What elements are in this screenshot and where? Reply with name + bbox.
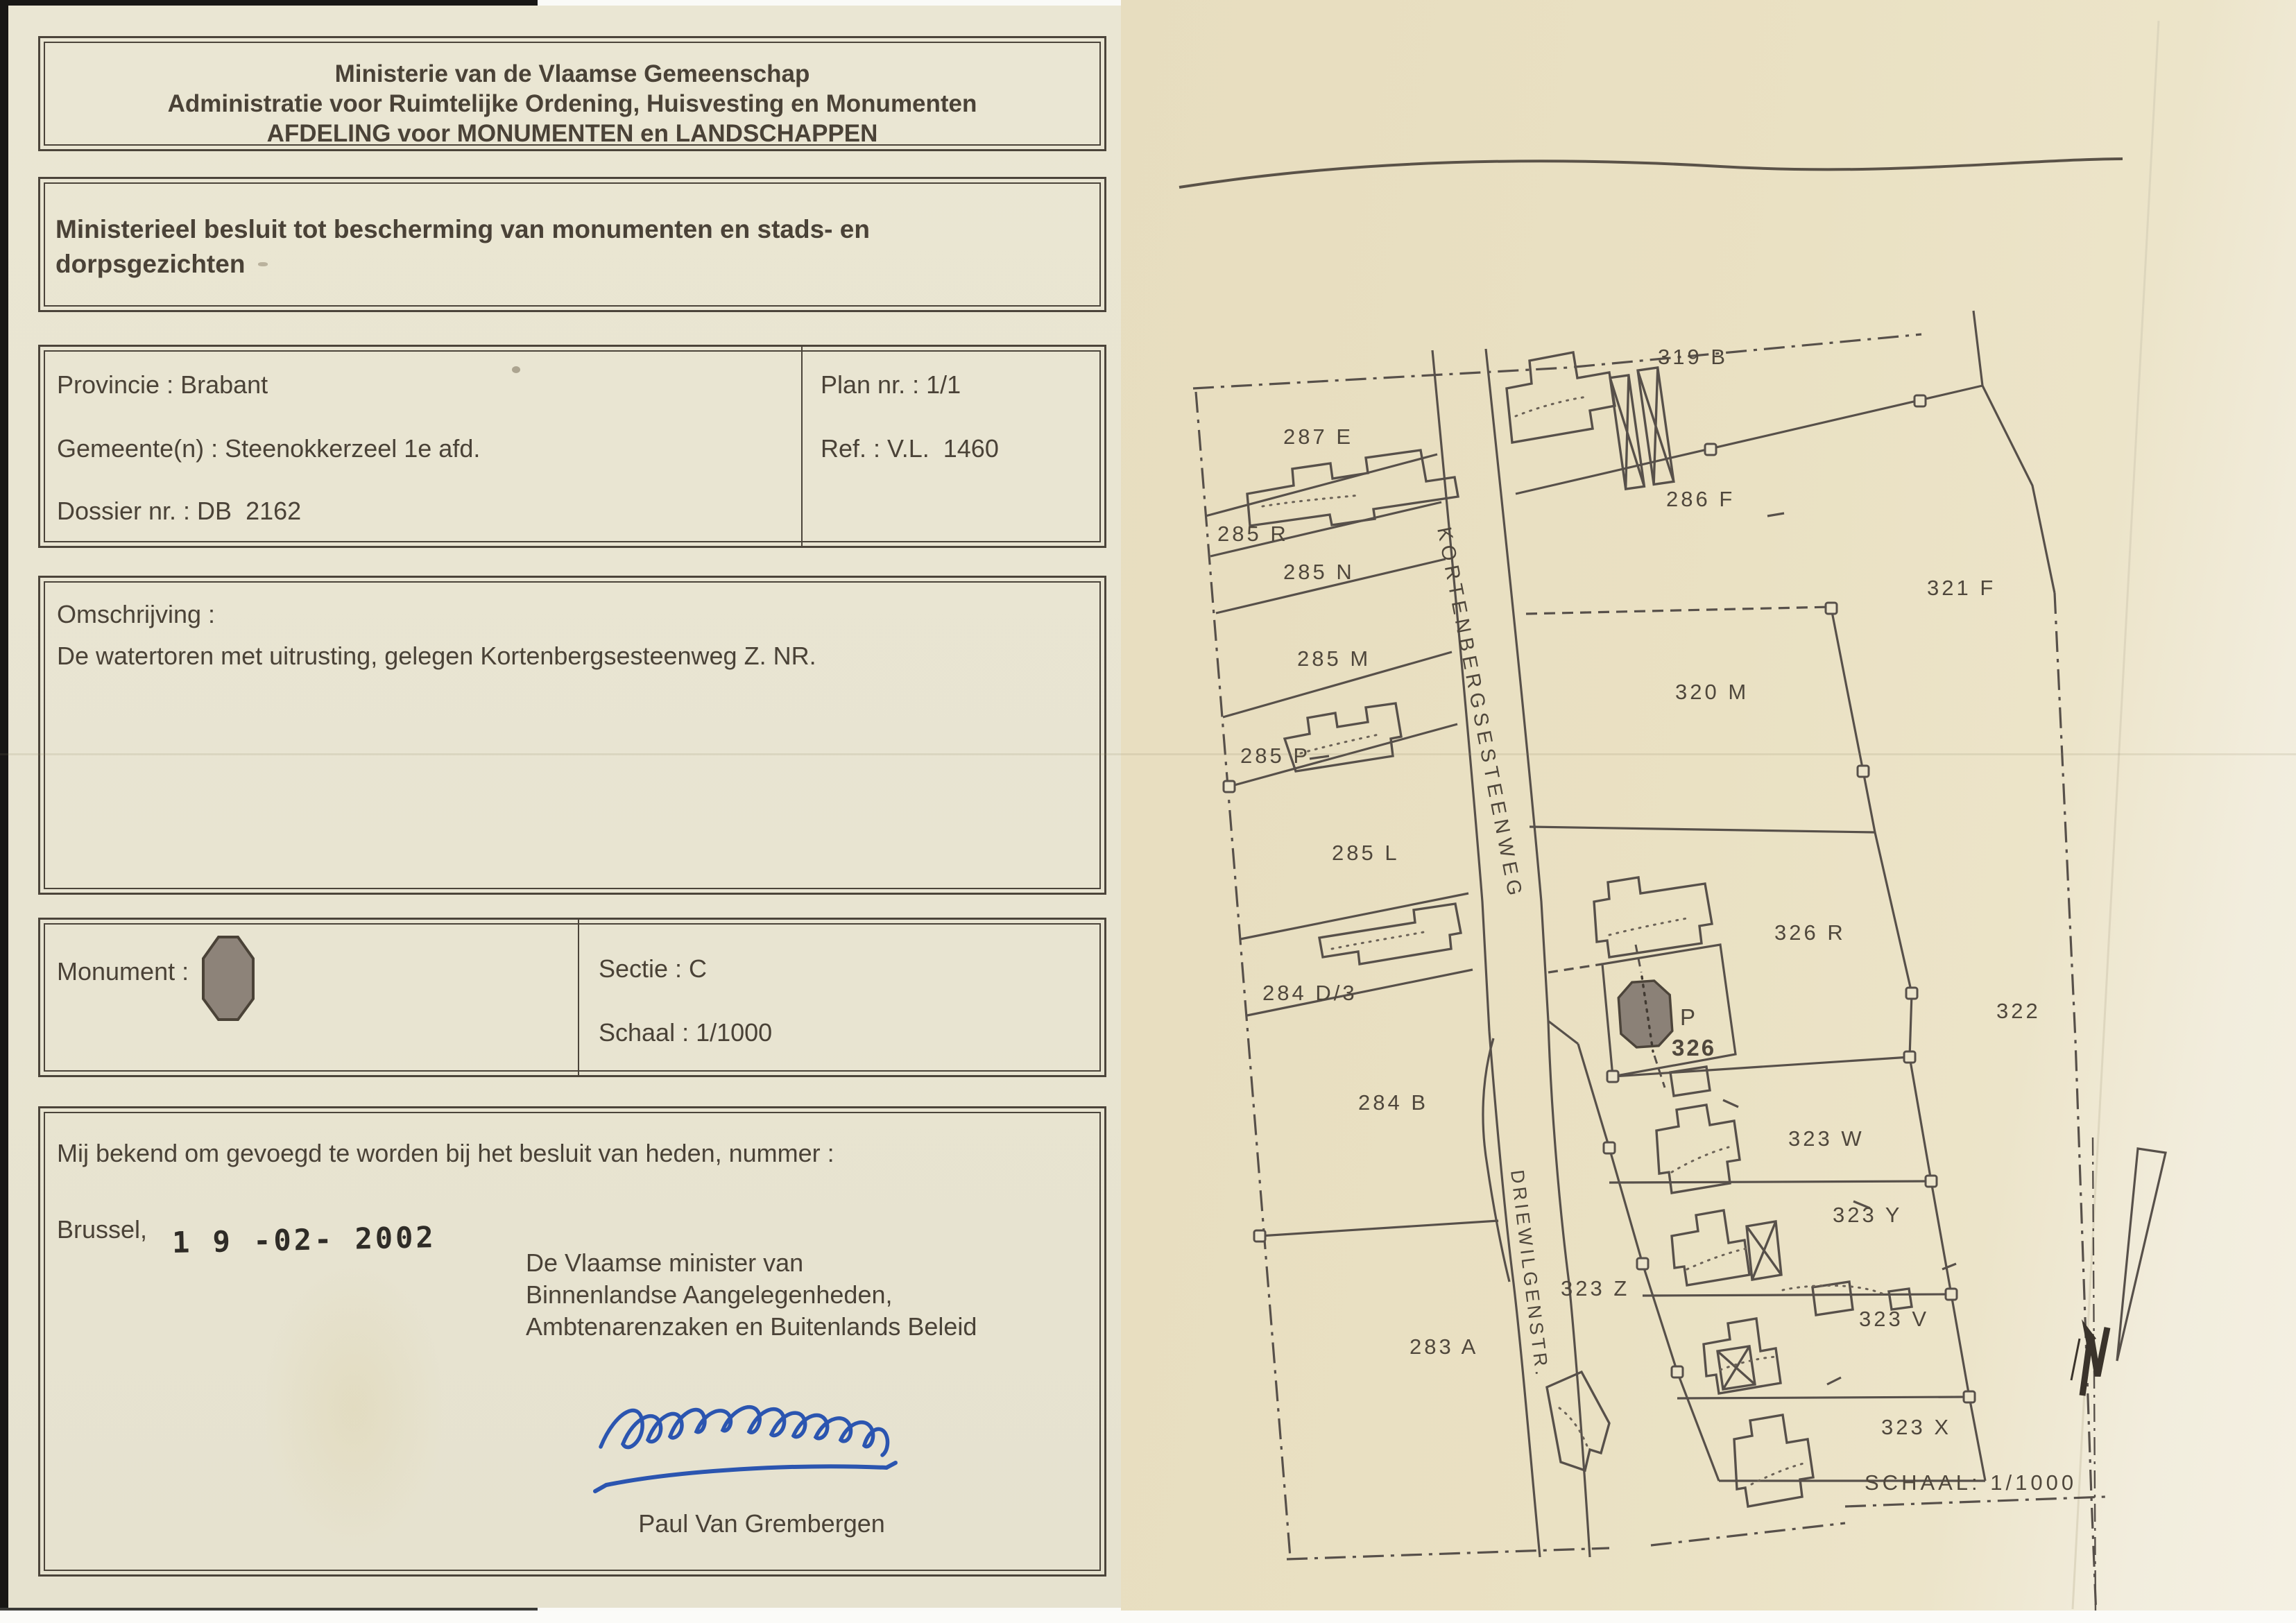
- parcel-label: 323 W: [1788, 1126, 1865, 1151]
- monument-label: Monument :: [57, 956, 189, 987]
- parcel-label: 319 B: [1658, 345, 1728, 369]
- signature: [588, 1372, 921, 1518]
- schaal-field: Schaal : 1/1000: [599, 1017, 772, 1048]
- parcel-label: 285 P: [1240, 744, 1310, 768]
- street-label-kortenbergsesteenweg: KORTENBERGSESTEENWEG: [1432, 525, 1527, 902]
- scanned-document: Ministerie van de Vlaamse Gemeenschap Ad…: [0, 0, 2296, 1623]
- parcel-label: 321 F: [1927, 576, 1996, 600]
- parcel-label: 323 V: [1859, 1307, 1929, 1331]
- parcel-label: 322: [1996, 999, 2041, 1023]
- parcel-label: 286 F: [1666, 487, 1735, 511]
- info-divider: [801, 347, 803, 546]
- monument-marker-number: 326: [1672, 1035, 1716, 1060]
- closing-box: Mij bekend om gevoegd te worden bij het …: [38, 1106, 1106, 1577]
- parcel-label: 323 X: [1881, 1415, 1951, 1439]
- dossier-field: Dossier nr. : DB 2162: [57, 495, 301, 526]
- parcel-label: 285 L: [1332, 841, 1400, 865]
- map-scale-label: SCHAAL: 1/1000: [1865, 1470, 2077, 1495]
- scan-edge-left: [0, 0, 8, 1608]
- boundary-markers: [1224, 395, 1975, 1402]
- north-arrow-icon: [2071, 1319, 2107, 1396]
- dossier-info-box: Provincie : Brabant Gemeente(n) : Steeno…: [38, 345, 1106, 548]
- known-line: Mij bekend om gevoegd te worden bij het …: [57, 1137, 1070, 1169]
- horizontal-crease: [0, 753, 2296, 755]
- monument-legend-box: Monument : Sectie : C Schaal : 1/1000: [38, 918, 1106, 1077]
- parcel-label: 285 R: [1217, 522, 1289, 546]
- scan-bottom-strip: [0, 1611, 2296, 1623]
- monument-marker-p: P: [1680, 1004, 1697, 1030]
- omschrijving-label: Omschrijving :: [57, 599, 215, 630]
- place-line: Brussel,: [57, 1214, 147, 1245]
- scan-edge-top: [0, 0, 538, 6]
- omschrijving-text: De watertoren met uitrusting, gelegen Ko…: [57, 640, 1056, 671]
- north-needle-triangle: [2117, 1149, 2166, 1361]
- parcel-label: 284 D/3: [1262, 981, 1357, 1005]
- form-page: Ministerie van de Vlaamse Gemeenschap Ad…: [8, 6, 1121, 1608]
- parcel-label: 323 Y: [1833, 1203, 1902, 1227]
- decree-title: Ministerieel besluit tot bescherming van…: [55, 212, 1027, 282]
- parcel-label: 326 R: [1774, 920, 1846, 945]
- decree-title-box: Ministerieel besluit tot bescherming van…: [38, 177, 1106, 312]
- street-label-driewilgenstr: DRIEWILGENSTR.: [1507, 1169, 1553, 1380]
- date-stamp: 1 9 -02- 2002: [171, 1219, 436, 1261]
- monument-octagon-icon: [201, 935, 255, 1022]
- gemeente-field: Gemeente(n) : Steenokkerzeel 1e afd.: [57, 433, 480, 464]
- parcel-label: 320 M: [1675, 680, 1749, 704]
- parcel-label: 285 N: [1283, 560, 1355, 584]
- parcel-label: 323 Z: [1561, 1276, 1629, 1300]
- sectie-field: Sectie : C: [599, 953, 707, 984]
- ministry-line3: AFDELING voor MONUMENTEN en LANDSCHAPPEN: [40, 119, 1104, 149]
- minister-line2: Binnenlandse Aangelegenheden,: [526, 1279, 893, 1310]
- plan-nr-field: Plan nr. : 1/1: [821, 369, 961, 400]
- parcel-labels: 319 B 287 E 285 R 285 N 285 M 285 P 285 …: [1217, 345, 2041, 1439]
- parcel-label: 283 A: [1410, 1334, 1478, 1359]
- signer-name: Paul Van Grembergen: [616, 1508, 907, 1539]
- ministry-line2: Administratie voor Ruimtelijke Ordening,…: [40, 89, 1104, 119]
- parcel-boundaries: [1193, 311, 2105, 1616]
- cadastral-map: P 326 KORTENBERGSESTEENWEG DRIEWILGENSTR…: [1124, 0, 2296, 1623]
- monument-divider: [578, 920, 579, 1075]
- provincie-field: Provincie : Brabant: [57, 369, 268, 400]
- minister-line1: De Vlaamse minister van: [526, 1247, 803, 1278]
- ministry-line1: Ministerie van de Vlaamse Gemeenschap: [40, 59, 1104, 89]
- omschrijving-box: Omschrijving : De watertoren met uitrust…: [38, 576, 1106, 895]
- minister-line3: Ambtenarenzaken en Buitenlands Beleid: [526, 1311, 977, 1342]
- parcel-label: 284 B: [1358, 1090, 1428, 1115]
- ministry-header-box: Ministerie van de Vlaamse Gemeenschap Ad…: [38, 36, 1106, 151]
- ref-field: Ref. : V.L. 1460: [821, 433, 999, 464]
- parcel-label: 285 M: [1297, 646, 1371, 671]
- paper-fold-top: [1179, 159, 2123, 187]
- parcel-label: 287 E: [1283, 424, 1353, 449]
